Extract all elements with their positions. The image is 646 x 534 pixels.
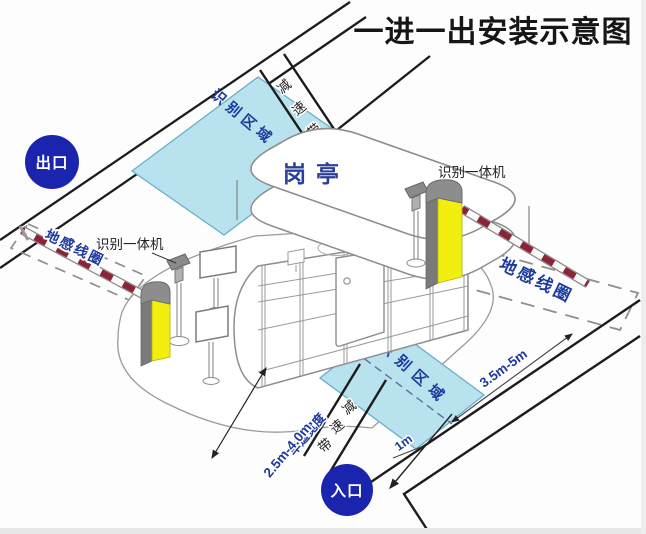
camera-right-label: 识别一体机 bbox=[438, 165, 506, 180]
right-edge-strip bbox=[641, 0, 646, 534]
exit-badge: 出口 bbox=[25, 135, 79, 189]
bottom-edge-strip bbox=[0, 528, 646, 534]
diagram-page: 识别区域 减 速 带 识别区域 3.5m-5m 1m bbox=[0, 0, 646, 534]
entrance-badge: 入口 bbox=[321, 464, 373, 516]
installation-diagram: 识别区域 减 速 带 识别区域 3.5m-5m 1m bbox=[0, 0, 646, 534]
camera-left-bracket bbox=[175, 267, 183, 283]
loop-distance-dimension: 3.5m-5m bbox=[452, 334, 572, 422]
page-title: 一进一出安装示意图 bbox=[354, 15, 633, 49]
door-knob bbox=[344, 278, 350, 284]
barrier-left-front bbox=[152, 299, 170, 361]
barrier-right-front bbox=[438, 198, 462, 283]
barrier-left-cap bbox=[141, 282, 170, 304]
speed-bump-bottom-char-3: 带 bbox=[315, 435, 335, 455]
barrier-right-cap bbox=[426, 180, 462, 203]
booth-label: 岗亭 bbox=[283, 161, 349, 187]
booth-door bbox=[336, 251, 384, 346]
barrier-right-side bbox=[426, 198, 438, 289]
exit-badge-label: 出口 bbox=[35, 153, 68, 172]
camera-left-callout: 识别一体机 bbox=[96, 237, 176, 263]
barrier-left-side bbox=[141, 299, 152, 366]
camera-right-bracket bbox=[412, 195, 420, 211]
camera-left-label: 识别一体机 bbox=[96, 237, 164, 252]
entrance-badge-label: 入口 bbox=[330, 482, 363, 500]
